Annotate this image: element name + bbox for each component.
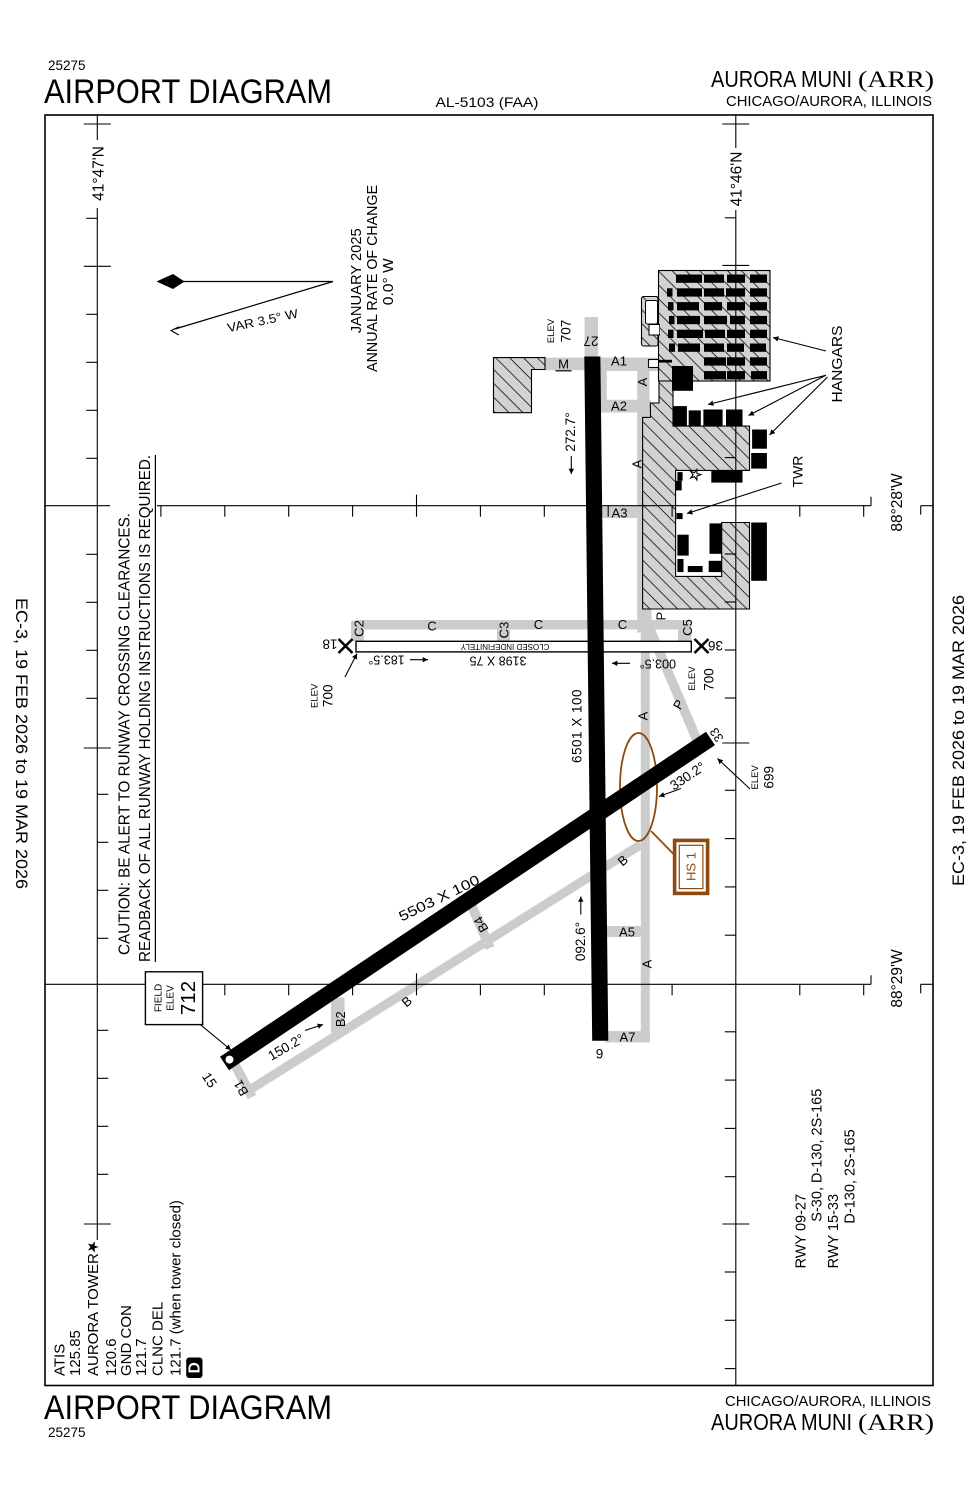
- svg-text:41°46'N: 41°46'N: [729, 152, 746, 207]
- svg-text:36: 36: [708, 638, 723, 653]
- svg-text:700: 700: [321, 685, 336, 708]
- svg-text:88°29'W: 88°29'W: [889, 949, 906, 1008]
- svg-text:88°28'W: 88°28'W: [889, 473, 906, 532]
- svg-text:125.85: 125.85: [67, 1330, 84, 1376]
- svg-text:183.5°: 183.5°: [368, 653, 404, 667]
- svg-text:(ARR): (ARR): [858, 1410, 934, 1436]
- svg-text:JANUARY 2025: JANUARY 2025: [349, 228, 365, 333]
- svg-text:TWR: TWR: [789, 456, 805, 488]
- svg-text:AURORA TOWER: AURORA TOWER: [85, 1253, 102, 1376]
- svg-text:CHICAGO/AURORA, ILLINOIS: CHICAGO/AURORA, ILLINOIS: [725, 1393, 931, 1410]
- svg-text:C3: C3: [497, 622, 512, 639]
- svg-text:712: 712: [177, 981, 200, 1015]
- svg-text:CAUTION: BE ALERT TO RUNWAY CR: CAUTION: BE ALERT TO RUNWAY CROSSING CLE…: [117, 513, 134, 955]
- svg-text:C2: C2: [352, 620, 367, 637]
- svg-text:A3: A3: [612, 506, 628, 521]
- svg-text:699: 699: [762, 766, 777, 789]
- svg-text:HS 1: HS 1: [683, 852, 698, 881]
- svg-text:READBACK OF ALL RUNWAY HOLDING: READBACK OF ALL RUNWAY HOLDING INSTRUCTI…: [137, 455, 154, 962]
- svg-text:AIRPORT DIAGRAM: AIRPORT DIAGRAM: [44, 73, 332, 111]
- svg-text:ELEV: ELEV: [309, 683, 320, 708]
- svg-text:M: M: [558, 357, 569, 372]
- svg-text:CLOSED INDEFINITELY: CLOSED INDEFINITELY: [460, 642, 549, 651]
- svg-text:A: A: [630, 459, 645, 468]
- svg-text:(ARR): (ARR): [858, 67, 934, 93]
- svg-text:A5: A5: [619, 925, 635, 940]
- svg-text:0.0° W: 0.0° W: [381, 258, 397, 305]
- svg-text:C: C: [427, 618, 436, 633]
- svg-text:6501 X 100: 6501 X 100: [570, 689, 585, 763]
- svg-text:C: C: [618, 617, 627, 632]
- svg-text:S-30, D-130, 2S-165: S-30, D-130, 2S-165: [810, 1089, 826, 1222]
- svg-text:121.7: 121.7: [133, 1338, 150, 1376]
- svg-text:FIELD: FIELD: [154, 984, 165, 1012]
- svg-text:P: P: [654, 612, 669, 621]
- svg-text:A: A: [635, 377, 650, 386]
- svg-text:ELEV: ELEV: [546, 318, 557, 343]
- svg-text:ANNUAL RATE OF CHANGE: ANNUAL RATE OF CHANGE: [365, 185, 381, 372]
- svg-text:A1: A1: [611, 354, 627, 369]
- svg-text:AURORA MUNI: AURORA MUNI: [711, 66, 852, 92]
- svg-text:CLNC DEL: CLNC DEL: [150, 1302, 167, 1376]
- svg-text:092.6°: 092.6°: [573, 922, 588, 961]
- svg-text:HANGARS: HANGARS: [830, 326, 846, 403]
- svg-text:25275: 25275: [48, 58, 86, 73]
- svg-text:700: 700: [702, 668, 717, 691]
- svg-text:3198 X 75: 3198 X 75: [469, 654, 526, 668]
- svg-text:272.7°: 272.7°: [563, 412, 578, 451]
- svg-text:ELEV: ELEV: [750, 764, 761, 789]
- svg-text:CHICAGO/AURORA, ILLINOIS: CHICAGO/AURORA, ILLINOIS: [726, 93, 932, 110]
- svg-text:ELEV: ELEV: [687, 666, 698, 691]
- svg-text:41°47'N: 41°47'N: [91, 146, 108, 201]
- svg-text:25275: 25275: [48, 1425, 86, 1440]
- svg-text:C: C: [534, 617, 543, 632]
- svg-text:A2: A2: [611, 399, 627, 414]
- svg-text:EC-3, 19 FEB 2026 to 19 MAR: EC-3, 19 FEB 2026 to 19 MAR 2026: [950, 595, 968, 886]
- svg-text:AURORA MUNI: AURORA MUNI: [711, 1409, 852, 1435]
- svg-text:A: A: [636, 711, 651, 720]
- svg-text:AIRPORT DIAGRAM: AIRPORT DIAGRAM: [44, 1389, 332, 1427]
- svg-text:RWY 09-27: RWY 09-27: [793, 1194, 809, 1268]
- svg-text:B2: B2: [333, 1011, 348, 1027]
- svg-text:AL-5103 (FAA): AL-5103 (FAA): [436, 94, 539, 110]
- svg-text:D-130, 2S-165: D-130, 2S-165: [842, 1129, 858, 1223]
- svg-text:9: 9: [596, 1047, 604, 1062]
- svg-text:EC-3, 19 FEB 2026 to 19 MAR: EC-3, 19 FEB 2026 to 19 MAR 2026: [12, 598, 30, 889]
- svg-text:A7: A7: [620, 1030, 636, 1045]
- svg-text:27: 27: [583, 333, 598, 348]
- svg-text:RWY 15-33: RWY 15-33: [826, 1194, 842, 1268]
- svg-text:707: 707: [559, 320, 574, 343]
- svg-text:003.5°: 003.5°: [640, 657, 676, 671]
- svg-text:ELEV: ELEV: [166, 985, 177, 1011]
- svg-text:D: D: [187, 1362, 204, 1373]
- svg-text:C5: C5: [680, 619, 695, 636]
- svg-text:A: A: [640, 959, 655, 968]
- svg-text:121.7 (when tower closed): 121.7 (when tower closed): [168, 1200, 185, 1376]
- svg-text:18: 18: [322, 636, 337, 651]
